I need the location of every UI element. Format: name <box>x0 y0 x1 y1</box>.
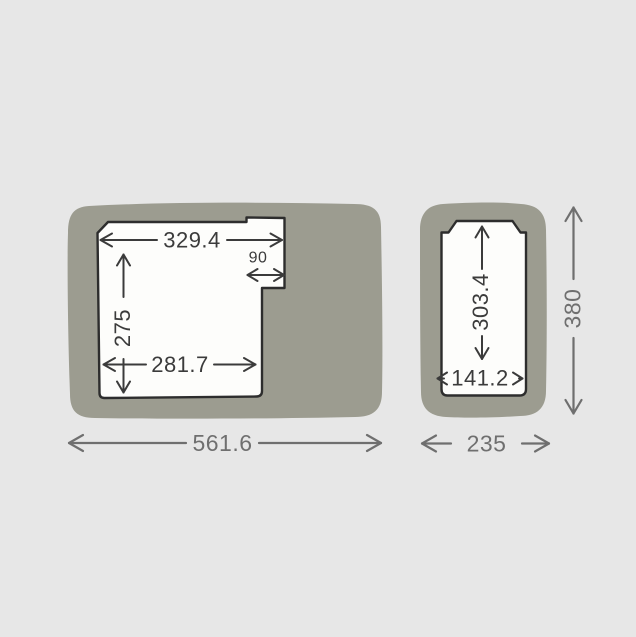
dim-left-overall-width: 561.6 <box>69 430 381 456</box>
diagram-canvas: 329.4 90 275 281.7 <box>0 0 636 637</box>
dim-label-overall-height: 380 <box>560 289 586 329</box>
dim-label-bottom-width: 281.7 <box>151 352 209 377</box>
left-compartment: 329.4 90 275 281.7 <box>68 203 383 456</box>
dim-label-overall-width: 561.6 <box>192 430 252 456</box>
right-compartment: 303.4 141.2 380 235 <box>420 203 586 457</box>
dim-right-overall-height: 380 <box>560 208 586 414</box>
dim-label-overall-width: 235 <box>467 431 507 457</box>
dim-label-inner-height: 275 <box>110 309 135 347</box>
dimension-diagram: 329.4 90 275 281.7 <box>0 0 636 637</box>
dim-label-step-width: 90 <box>249 250 268 267</box>
dim-right-overall-width: 235 <box>422 431 549 457</box>
dim-label-inner-height: 303.4 <box>468 273 493 331</box>
dim-label-inner-width: 141.2 <box>451 366 509 391</box>
dim-label-top-width: 329.4 <box>163 228 221 253</box>
